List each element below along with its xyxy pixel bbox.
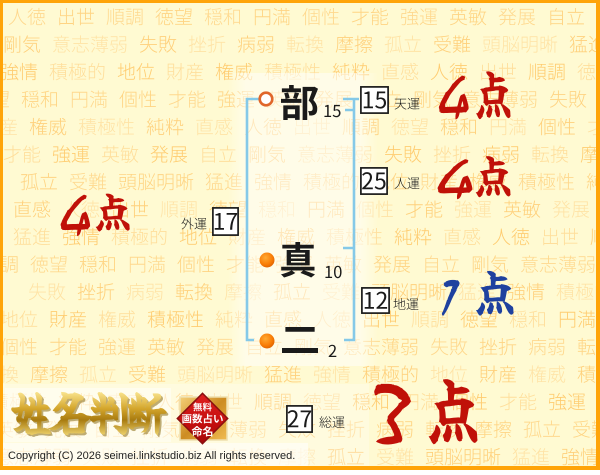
svg-text:Copyright (C) 2026 seimei.link: Copyright (C) 2026 seimei.linkstudio.biz… (8, 450, 295, 462)
